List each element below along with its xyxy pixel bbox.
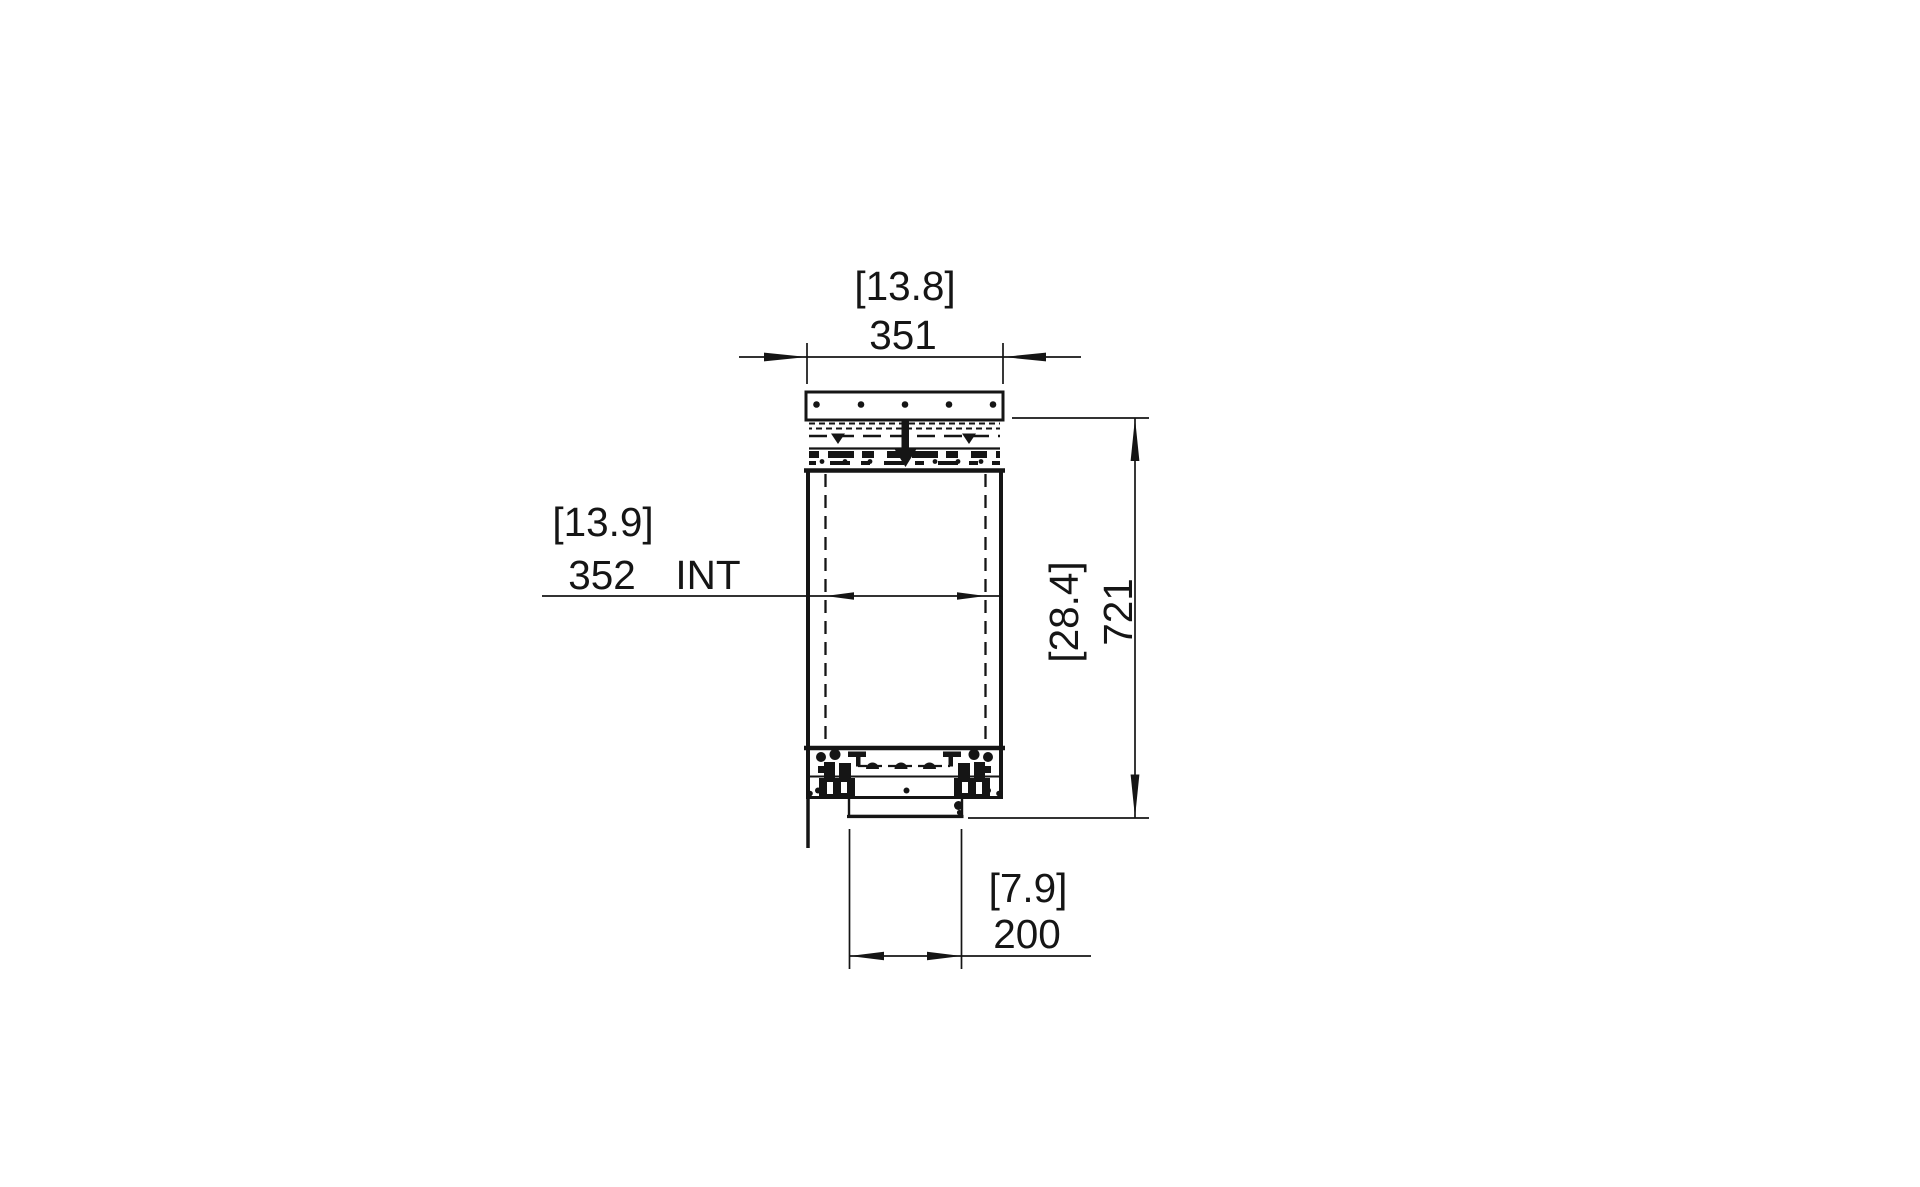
top-width-metric-label: 351 [869,312,937,358]
interior-width-imperial-label: [13.9] [552,499,653,545]
overall-height-metric-label: 721 [1095,578,1141,646]
interior-width-suffix-label: INT [675,552,740,598]
bottom-width-metric-label: 200 [993,911,1061,957]
dimension-top-width: [13.8] 351 [739,263,1081,384]
center-bolt [902,420,910,451]
dimension-arrow [1131,418,1140,461]
firebox-section [804,392,1005,848]
dimension-arrow [957,592,986,600]
gasket-bumps [866,763,936,770]
top-detail-band [804,420,1005,471]
drawing-canvas: [13.8] 351 [13.9] 352 INT [28.4] 721 [7.… [0,0,1920,1187]
bottom-duct [847,799,964,817]
dimension-overall-height: [28.4] 721 [968,418,1149,818]
interior-width-metric-label: 352 [568,552,636,598]
technical-drawing: [13.8] 351 [13.9] 352 INT [28.4] 721 [7.… [0,0,1920,1187]
dimension-bottom-width: [7.9] 200 [850,829,1092,969]
dimension-interior-width: [13.9] 352 INT [542,499,1003,600]
top-width-imperial-label: [13.8] [854,263,955,309]
fastener-mark-left [831,434,845,445]
dimension-arrow [764,353,807,362]
dimension-arrow [850,952,885,960]
dimension-arrow [1003,353,1046,362]
base-assembly [804,748,1005,798]
dimension-arrow [927,952,962,960]
duct-plug-dot [954,801,963,810]
bottom-width-imperial-label: [7.9] [989,865,1068,911]
leveling-foot-right [943,749,1002,798]
overall-height-imperial-label: [28.4] [1041,561,1087,662]
fastener-mark-right [962,434,976,445]
dimension-arrow [826,592,855,600]
dimension-arrow [1131,775,1140,818]
